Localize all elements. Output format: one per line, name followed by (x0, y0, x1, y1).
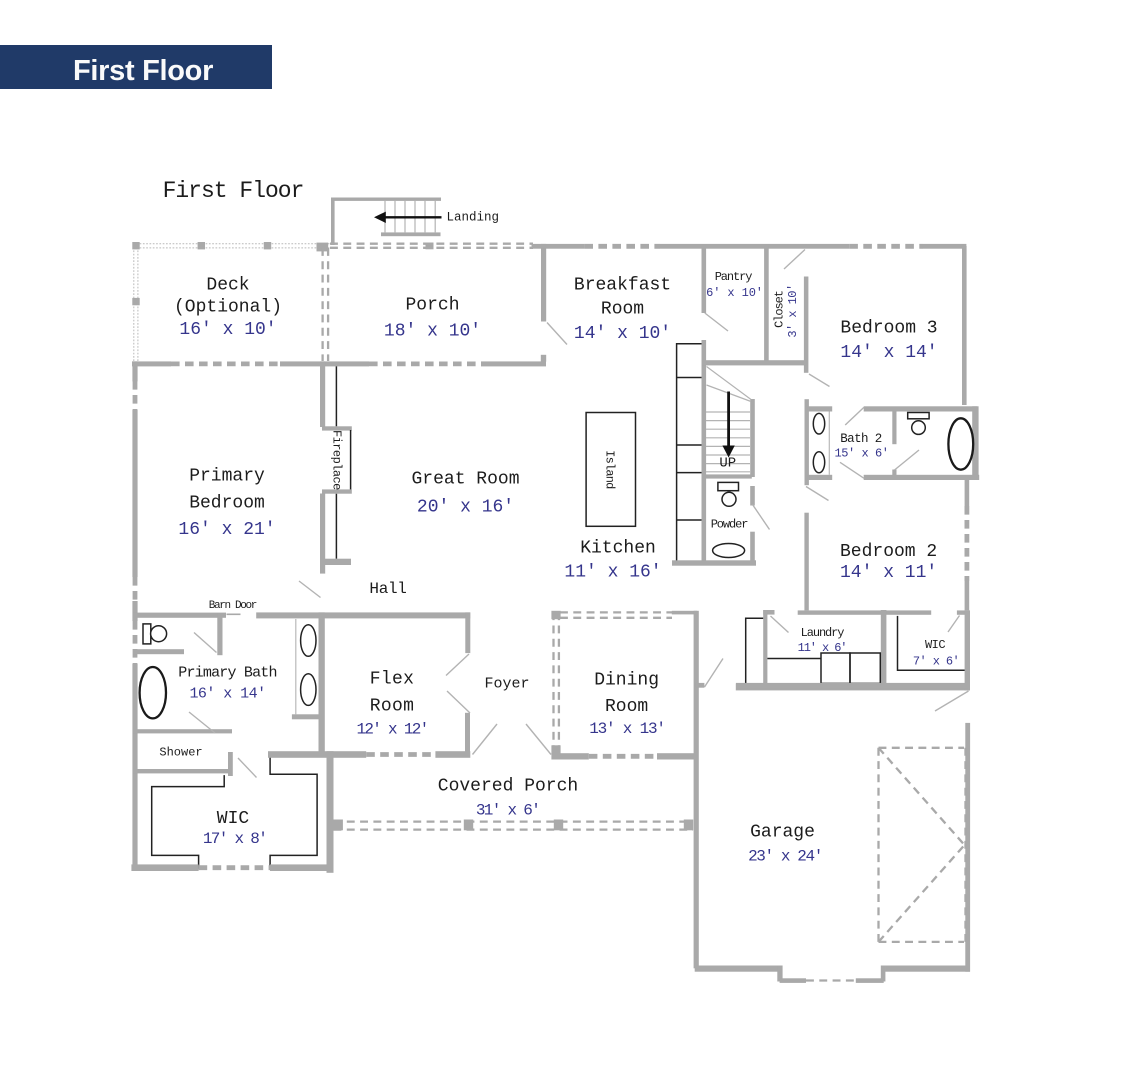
svg-text:14' x 11': 14' x 11' (840, 563, 937, 583)
svg-text:Great Room: Great Room (411, 470, 519, 490)
svg-text:Breakfast: Breakfast (574, 276, 671, 296)
svg-text:Deck: Deck (206, 276, 249, 296)
svg-text:Flex: Flex (370, 670, 414, 690)
svg-text:31' x 6': 31' x 6' (476, 802, 539, 820)
svg-text:12' x 12': 12' x 12' (356, 721, 427, 739)
svg-text:Closet: Closet (773, 291, 787, 328)
svg-text:14' x 10': 14' x 10' (574, 324, 671, 344)
svg-text:11' x 6': 11' x 6' (798, 641, 847, 655)
svg-text:Bedroom: Bedroom (189, 494, 265, 514)
svg-text:14' x 14': 14' x 14' (840, 343, 937, 363)
svg-text:First Floor: First Floor (163, 178, 304, 204)
svg-text:Shower: Shower (159, 746, 202, 760)
svg-text:Foyer: Foyer (484, 676, 529, 693)
svg-text:Primary: Primary (189, 467, 265, 487)
svg-text:First Floor: First Floor (73, 55, 213, 87)
svg-text:Dining: Dining (594, 671, 659, 691)
svg-text:15' x 6': 15' x 6' (834, 447, 888, 461)
svg-text:7' x 6': 7' x 6' (913, 655, 959, 669)
svg-text:13' x 13': 13' x 13' (589, 720, 665, 738)
svg-text:Garage: Garage (750, 823, 815, 843)
svg-text:Landing: Landing (447, 211, 500, 225)
svg-text:16' x 14': 16' x 14' (189, 686, 265, 703)
svg-text:Room: Room (605, 697, 648, 717)
svg-text:Island: Island (603, 450, 617, 489)
svg-text:18' x 10': 18' x 10' (384, 322, 481, 342)
svg-text:Bath 2: Bath 2 (840, 432, 882, 446)
svg-text:16' x 21': 16' x 21' (178, 520, 275, 540)
svg-text:16' x 10': 16' x 10' (179, 320, 276, 340)
svg-text:Hall: Hall (369, 580, 406, 598)
svg-text:6' x 10': 6' x 10' (706, 286, 763, 300)
svg-text:Fireplace: Fireplace (330, 430, 344, 490)
svg-text:UP: UP (719, 456, 736, 472)
svg-text:Powder: Powder (711, 518, 749, 532)
svg-text:Bedroom 3: Bedroom 3 (840, 319, 937, 339)
svg-text:Pantry: Pantry (715, 270, 753, 284)
svg-text:Room: Room (601, 300, 644, 320)
svg-text:20' x 16': 20' x 16' (417, 498, 514, 518)
svg-text:Covered Porch: Covered Porch (438, 777, 578, 797)
svg-text:WIC: WIC (925, 638, 945, 652)
svg-text:3' x 10': 3' x 10' (786, 284, 800, 337)
svg-text:(Optional): (Optional) (174, 298, 282, 318)
svg-text:Room: Room (370, 697, 414, 717)
svg-text:23' x 24': 23' x 24' (748, 848, 822, 866)
svg-text:Primary Bath: Primary Bath (178, 665, 276, 682)
svg-text:WIC: WIC (217, 809, 250, 829)
svg-text:Laundry: Laundry (801, 626, 845, 640)
svg-text:Barn Door: Barn Door (209, 600, 257, 612)
svg-text:Porch: Porch (405, 296, 459, 316)
svg-text:11' x 16': 11' x 16' (564, 563, 661, 583)
svg-text:17' x 8': 17' x 8' (203, 830, 266, 848)
svg-text:Bedroom 2: Bedroom 2 (840, 542, 937, 562)
svg-text:Kitchen: Kitchen (580, 539, 656, 559)
